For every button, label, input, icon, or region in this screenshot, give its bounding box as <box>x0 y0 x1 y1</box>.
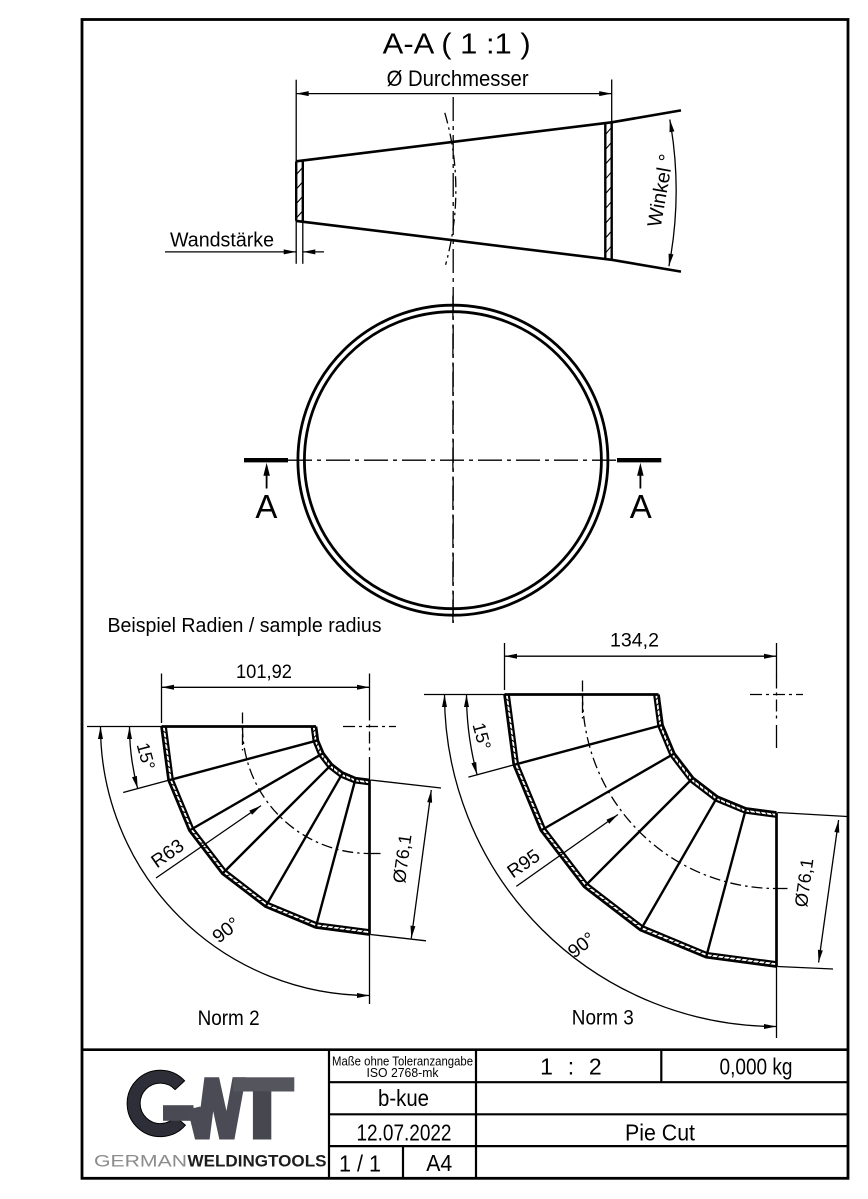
svg-text:A4: A4 <box>426 1150 452 1176</box>
svg-text:ISO 2768-mk: ISO 2768-mk <box>367 1066 440 1080</box>
svg-text:b-kue: b-kue <box>378 1085 429 1111</box>
svg-text:101,92: 101,92 <box>236 662 292 683</box>
svg-text:Ø Durchmesser: Ø Durchmesser <box>387 66 529 91</box>
svg-text:0,000 kg: 0,000 kg <box>720 1053 793 1079</box>
svg-text:A: A <box>630 488 652 525</box>
svg-text:A: A <box>255 488 277 525</box>
svg-text:Beispiel Radien / sample radiu: Beispiel Radien / sample radius <box>108 615 382 637</box>
svg-text:Norm 3: Norm 3 <box>572 1007 634 1030</box>
svg-text:1 / 1: 1 / 1 <box>339 1150 381 1176</box>
svg-text:134,2: 134,2 <box>610 631 659 652</box>
svg-text:GERMAN: GERMAN <box>94 1152 187 1170</box>
svg-text:12.07.2022: 12.07.2022 <box>357 1119 452 1145</box>
svg-text:A-A ( 1 :1 ): A-A ( 1 :1 ) <box>383 29 531 61</box>
svg-text:Wandstärke: Wandstärke <box>170 230 274 252</box>
svg-text:WELDINGTOOLS: WELDINGTOOLS <box>188 1152 327 1170</box>
svg-text:1 : 2: 1 : 2 <box>540 1053 606 1079</box>
svg-text:Pie Cut: Pie Cut <box>625 1120 696 1146</box>
svg-text:Norm 2: Norm 2 <box>198 1007 260 1030</box>
